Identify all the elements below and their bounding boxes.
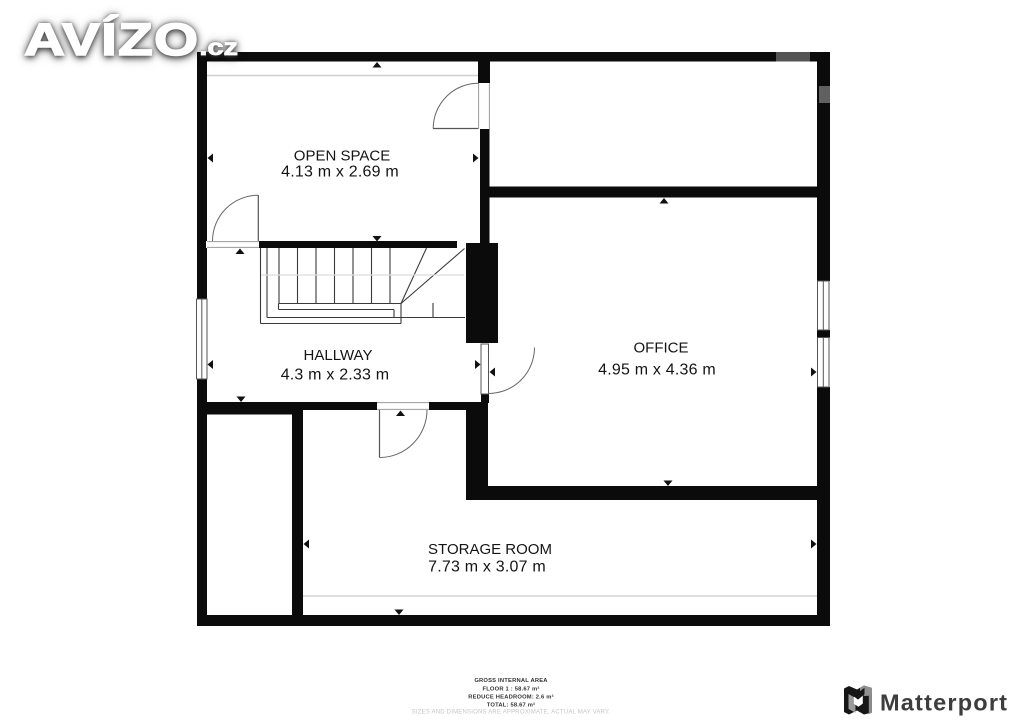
svg-text:OPEN SPACE: OPEN SPACE [294,148,390,165]
svg-text:Matterport: Matterport [880,690,1008,716]
svg-text:TOTAL: 58.67 m²: TOTAL: 58.67 m² [487,702,536,709]
svg-text:OFFICE: OFFICE [634,340,689,357]
svg-text:GROSS INTERNAL AREA: GROSS INTERNAL AREA [474,678,548,684]
svg-text:FLOOR 1 : 58.67 m²: FLOOR 1 : 58.67 m² [482,686,539,693]
svg-text:7.73 m x 3.07 m: 7.73 m x 3.07 m [428,559,546,576]
svg-text:4.3 m x 2.33 m: 4.3 m x 2.33 m [281,367,390,384]
svg-text:4.95 m x 4.36 m: 4.95 m x 4.36 m [598,362,716,379]
svg-text:REDUCE HEADROOM: 2.6 m²: REDUCE HEADROOM: 2.6 m² [468,694,553,701]
svg-text:SIZES AND DIMENSIONS ARE APPRO: SIZES AND DIMENSIONS ARE APPROXIMATE, AC… [412,710,611,716]
svg-text:4.13 m x 2.69 m: 4.13 m x 2.69 m [281,164,399,181]
svg-text:HALLWAY: HALLWAY [304,347,373,364]
svg-text:STORAGE ROOM: STORAGE ROOM [428,541,552,558]
